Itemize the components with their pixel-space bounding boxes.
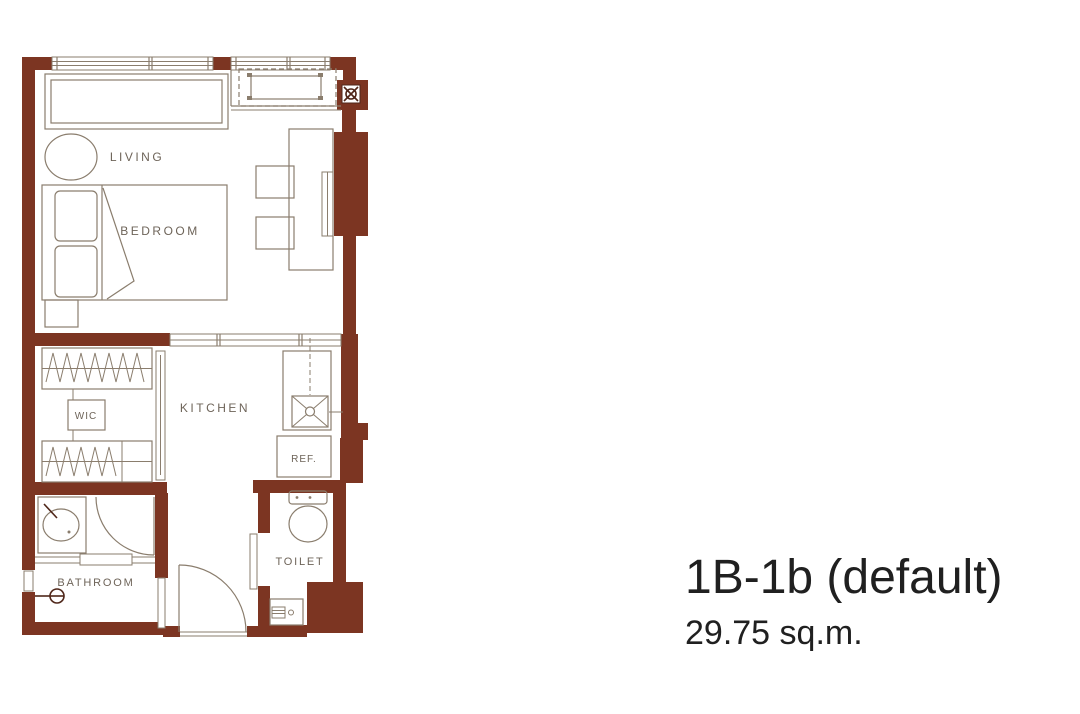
living-label: LIVING [110, 150, 164, 164]
bathroom-door-swing [96, 497, 154, 555]
drain-icon [342, 85, 360, 103]
blanket-fold [103, 188, 134, 299]
nightstand [45, 300, 78, 327]
toilet-bowl [289, 491, 327, 542]
ac-unit [239, 69, 336, 106]
window-top-left [52, 57, 213, 70]
sofa [45, 74, 228, 129]
wic-sliding-door [156, 351, 165, 480]
washer-fixture [270, 599, 303, 625]
window-right-wall [322, 172, 333, 236]
room-bedroom: BEDROOM [42, 185, 227, 327]
toilet-sliding-door [250, 534, 257, 589]
room-wic: WIC [42, 348, 165, 482]
window-top-right [231, 57, 330, 70]
chair [256, 217, 294, 249]
unit-area: 29.75 sq.m. [685, 613, 1003, 654]
refrigerator: REF. [277, 436, 331, 477]
wardrobe-bottom [42, 441, 152, 482]
wic-label: WIC [75, 411, 97, 422]
chair [256, 166, 294, 198]
unit-name: 1B-1b (default) [685, 552, 1003, 605]
windows [24, 57, 341, 591]
window-bathroom [24, 571, 33, 591]
shower-valve-icon [35, 589, 64, 603]
window-kitchen-band [170, 334, 341, 346]
wardrobe-top [42, 348, 152, 389]
bathroom-sink [38, 497, 86, 553]
refrigerator-label: REF. [291, 454, 317, 465]
room-bathroom: BATHROOM [35, 497, 155, 603]
kitchen-label: KITCHEN [180, 401, 250, 415]
toilet-label: TOILET [275, 556, 324, 568]
floorplan-page: LIVING BEDROOM [0, 0, 1080, 714]
coffee-table [45, 134, 97, 180]
kitchen-counter [283, 351, 331, 430]
bedroom-label: BEDROOM [120, 224, 200, 238]
pillow [55, 191, 97, 241]
entry-door-swing [179, 565, 247, 636]
entry-partition [158, 578, 165, 628]
bed [42, 185, 227, 300]
walls [22, 57, 368, 637]
pillow [55, 246, 97, 297]
shower-partition [35, 554, 155, 565]
unit-title-block: 1B-1b (default) 29.75 sq.m. [685, 552, 1003, 654]
kitchen-sink [292, 396, 343, 427]
bathroom-label: BATHROOM [57, 577, 134, 589]
